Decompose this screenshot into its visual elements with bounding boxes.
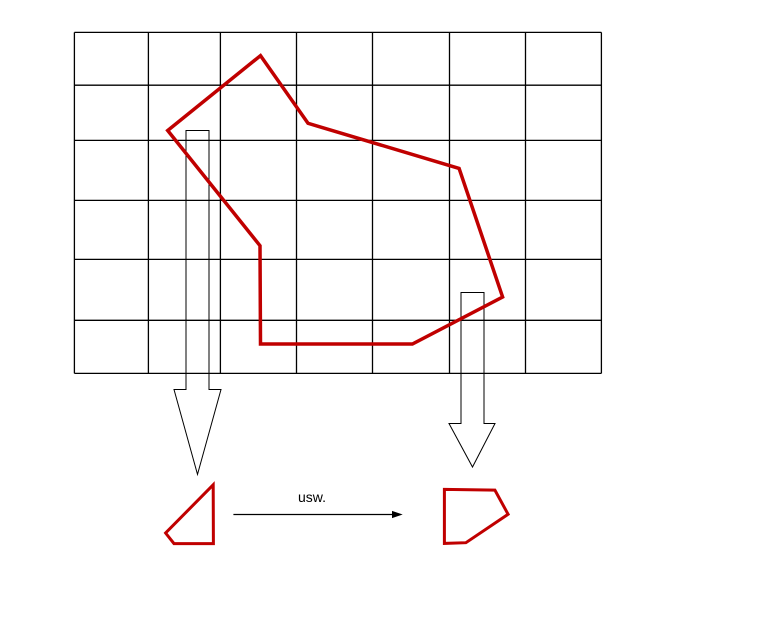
svg-text:usw.: usw. — [298, 489, 326, 505]
